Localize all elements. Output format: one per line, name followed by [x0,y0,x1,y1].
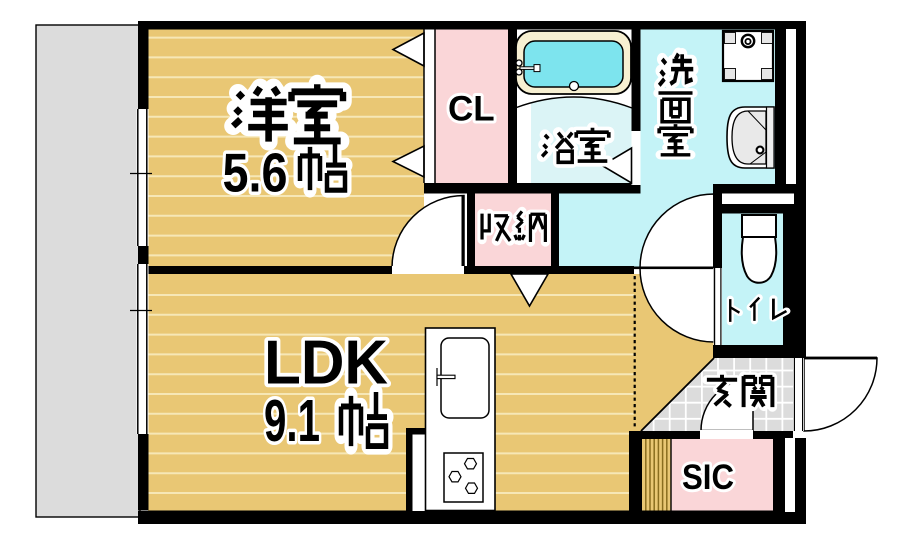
svg-text:9.1: 9.1 [264,388,320,454]
svg-text:CL: CL [448,90,495,129]
svg-text:SIC: SIC [682,458,734,497]
svg-text:5.6: 5.6 [223,142,288,204]
